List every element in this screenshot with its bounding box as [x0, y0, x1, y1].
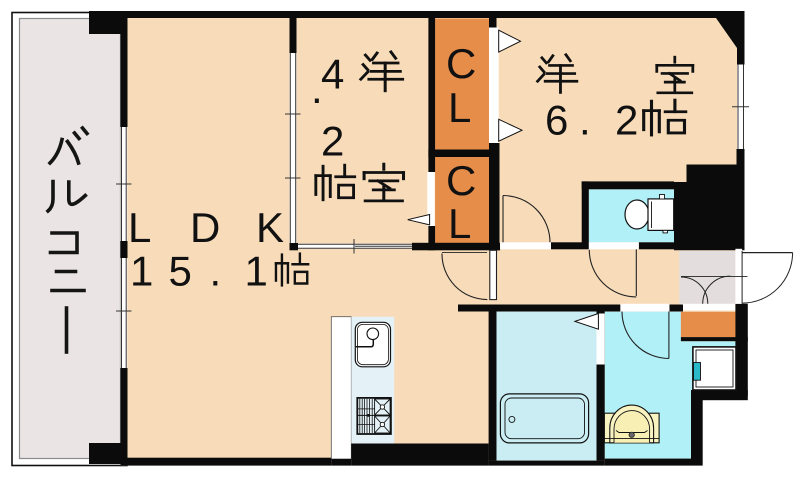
svg-text:K: K — [256, 204, 284, 251]
svg-text:C: C — [446, 157, 476, 204]
svg-text:1: 1 — [130, 248, 153, 295]
svg-text:2: 2 — [321, 118, 344, 165]
svg-text:1: 1 — [245, 248, 268, 295]
svg-text:2: 2 — [615, 97, 638, 144]
svg-text:.: . — [579, 97, 591, 144]
svg-text:L: L — [128, 204, 151, 251]
svg-text:4: 4 — [321, 51, 344, 98]
svg-text:6: 6 — [545, 97, 568, 144]
svg-text:L: L — [448, 200, 471, 247]
svg-text:.: . — [210, 248, 222, 295]
svg-text:C: C — [446, 40, 476, 87]
svg-text:.: . — [311, 65, 323, 112]
svg-text:L: L — [448, 84, 471, 131]
svg-text:5: 5 — [169, 248, 192, 295]
svg-text:D: D — [190, 204, 220, 251]
